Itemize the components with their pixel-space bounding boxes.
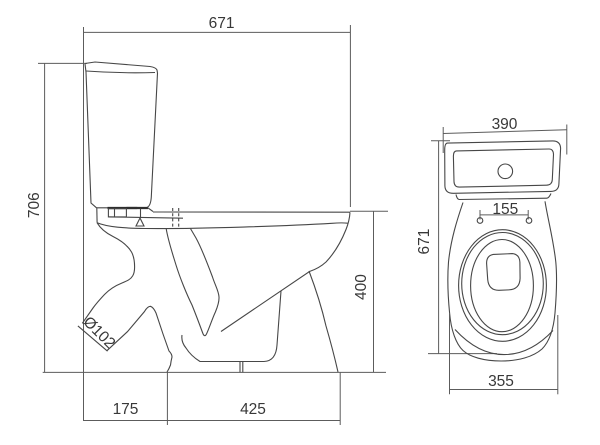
svg-text:671: 671 (209, 15, 235, 32)
svg-text:671: 671 (416, 229, 433, 255)
svg-text:390: 390 (492, 116, 518, 133)
svg-text:355: 355 (488, 373, 514, 390)
svg-text:706: 706 (26, 192, 43, 218)
svg-text:175: 175 (113, 401, 139, 418)
svg-text:155: 155 (492, 201, 518, 218)
svg-text:400: 400 (353, 274, 370, 300)
svg-text:425: 425 (240, 401, 266, 418)
